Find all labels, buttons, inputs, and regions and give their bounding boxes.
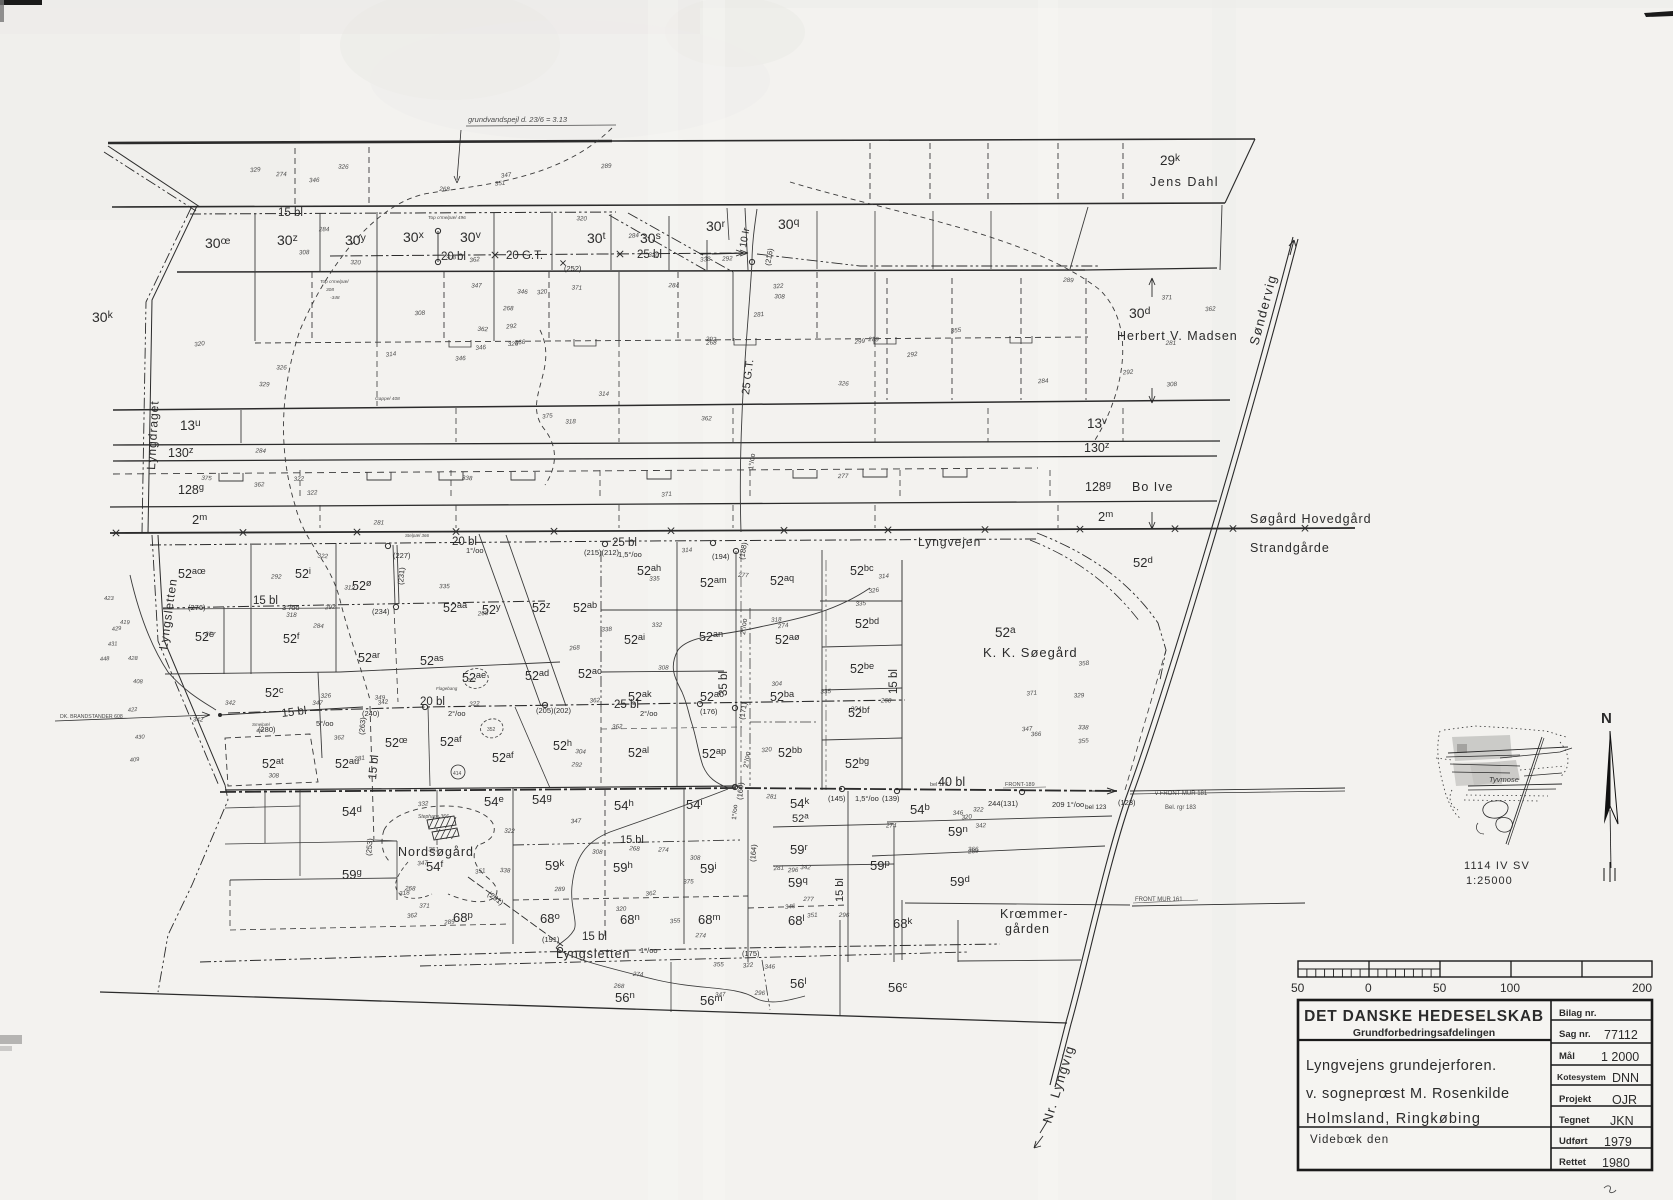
svg-text:(205)(202): (205)(202) bbox=[536, 706, 572, 715]
svg-text:15 bl: 15 bl bbox=[834, 878, 846, 902]
svg-text:320: 320 bbox=[648, 252, 659, 259]
svg-text:200: 200 bbox=[1632, 981, 1652, 995]
svg-text:338: 338 bbox=[700, 256, 712, 264]
svg-text:Tegnet: Tegnet bbox=[1559, 1115, 1590, 1126]
svg-text:308: 308 bbox=[445, 254, 456, 262]
svg-text:335: 335 bbox=[820, 688, 831, 696]
svg-text:414: 414 bbox=[453, 771, 462, 777]
svg-text:304: 304 bbox=[851, 706, 862, 713]
svg-text:Strandgårde: Strandgårde bbox=[1250, 541, 1330, 555]
svg-text:15 bl: 15 bl bbox=[367, 754, 381, 780]
svg-text:284: 284 bbox=[312, 622, 324, 630]
svg-text:268: 268 bbox=[880, 697, 892, 704]
svg-text:68l: 68l bbox=[788, 913, 805, 928]
svg-text:371: 371 bbox=[1161, 294, 1172, 301]
svg-text:318: 318 bbox=[399, 889, 411, 897]
svg-text:284: 284 bbox=[254, 447, 266, 455]
svg-text:20 bl: 20 bl bbox=[420, 696, 445, 708]
svg-text:318: 318 bbox=[771, 616, 782, 624]
svg-text:371: 371 bbox=[1026, 690, 1037, 698]
svg-text:289: 289 bbox=[443, 918, 456, 926]
svg-text:N: N bbox=[1601, 710, 1613, 727]
svg-text:277: 277 bbox=[837, 473, 849, 480]
svg-text:362: 362 bbox=[477, 326, 488, 333]
svg-text:(164): (164) bbox=[748, 843, 759, 862]
svg-text:1:25000: 1:25000 bbox=[1466, 875, 1513, 887]
svg-text:Udført: Udført bbox=[1559, 1136, 1588, 1147]
svg-text:362: 362 bbox=[701, 415, 712, 422]
svg-text:281: 281 bbox=[752, 311, 764, 319]
svg-text:281: 281 bbox=[373, 519, 385, 526]
svg-text:320: 320 bbox=[961, 813, 973, 821]
svg-text:346: 346 bbox=[455, 355, 466, 363]
svg-text:Kotesystem: Kotesystem bbox=[1557, 1072, 1606, 1082]
svg-text:FRONT MUR 161: FRONT MUR 161 bbox=[1135, 897, 1183, 903]
svg-text:15 bl: 15 bl bbox=[620, 834, 644, 846]
svg-text:318: 318 bbox=[565, 418, 576, 425]
svg-text:Krœmmer-: Krœmmer- bbox=[1000, 907, 1068, 921]
svg-text:299: 299 bbox=[853, 338, 866, 346]
svg-text:289: 289 bbox=[967, 848, 980, 856]
svg-text:408: 408 bbox=[133, 679, 144, 685]
svg-text:335: 335 bbox=[649, 575, 660, 582]
svg-text:351: 351 bbox=[807, 912, 818, 920]
svg-text:342: 342 bbox=[377, 698, 389, 706]
svg-text:371: 371 bbox=[419, 903, 430, 910]
svg-text:357: 357 bbox=[468, 678, 477, 684]
svg-text:308: 308 bbox=[658, 665, 669, 672]
svg-text:322: 322 bbox=[317, 553, 328, 561]
svg-text:430: 430 bbox=[135, 734, 146, 741]
svg-text:322: 322 bbox=[307, 489, 319, 497]
svg-text:322: 322 bbox=[773, 283, 785, 291]
svg-text:5°/oo: 5°/oo bbox=[316, 719, 334, 728]
svg-text:56l: 56l bbox=[790, 976, 807, 991]
svg-text:77112: 77112 bbox=[1604, 1028, 1638, 1042]
svg-text:274: 274 bbox=[885, 822, 897, 829]
svg-text:346: 346 bbox=[764, 964, 775, 971]
svg-text:15 bl: 15 bl bbox=[888, 669, 900, 694]
svg-text:268: 268 bbox=[568, 644, 581, 652]
svg-text:362: 362 bbox=[589, 697, 600, 705]
svg-text:292: 292 bbox=[570, 761, 582, 769]
svg-text:347: 347 bbox=[471, 282, 482, 289]
svg-text:Videbœk den: Videbœk den bbox=[1310, 1134, 1389, 1146]
svg-text:268: 268 bbox=[613, 983, 625, 990]
svg-text:423: 423 bbox=[104, 596, 114, 602]
svg-text:Top o'melpæl 496: Top o'melpæl 496 bbox=[428, 215, 466, 221]
svg-text:362: 362 bbox=[612, 723, 623, 731]
svg-text:(276): (276) bbox=[188, 603, 206, 612]
svg-text:448: 448 bbox=[100, 656, 111, 663]
svg-text:(194): (194) bbox=[712, 552, 730, 561]
svg-text:335: 335 bbox=[439, 583, 450, 590]
svg-text:352: 352 bbox=[487, 727, 496, 733]
svg-text:Gappel 408: Gappel 408 bbox=[375, 396, 400, 402]
svg-text:244(131): 244(131) bbox=[988, 799, 1019, 808]
svg-text:314: 314 bbox=[385, 351, 397, 359]
svg-text:375: 375 bbox=[542, 412, 554, 420]
svg-text:Søgård Hovedgård: Søgård Hovedgård bbox=[1250, 512, 1372, 526]
svg-text:59i: 59i bbox=[700, 861, 717, 876]
svg-text:428: 428 bbox=[128, 656, 138, 662]
svg-text:Bel. rgr 183: Bel. rgr 183 bbox=[1165, 805, 1197, 811]
svg-text:314: 314 bbox=[598, 391, 609, 398]
svg-text:292: 292 bbox=[270, 573, 282, 580]
svg-text:338: 338 bbox=[1078, 724, 1089, 731]
svg-text:422: 422 bbox=[128, 707, 139, 714]
svg-text:15 bl: 15 bl bbox=[582, 931, 607, 943]
svg-text:Lyngvejens grundejerforen.: Lyngvejens grundejerforen. bbox=[1306, 1058, 1497, 1074]
svg-text:50: 50 bbox=[1291, 981, 1305, 995]
svg-text:(160): (160) bbox=[735, 781, 746, 800]
svg-text:52i: 52i bbox=[295, 566, 311, 581]
svg-text:35 bl: 35 bl bbox=[718, 671, 730, 696]
svg-text:284: 284 bbox=[318, 226, 330, 233]
svg-text:268: 268 bbox=[628, 845, 640, 853]
svg-text:274: 274 bbox=[694, 932, 706, 940]
svg-text:431: 431 bbox=[108, 641, 118, 648]
svg-text:1,5°/oo: 1,5°/oo bbox=[618, 550, 642, 559]
svg-text:bel 123: bel 123 bbox=[1085, 804, 1107, 811]
svg-text:308: 308 bbox=[592, 849, 603, 856]
svg-text:Flagebang: Flagebang bbox=[436, 686, 458, 691]
svg-text:(231): (231) bbox=[396, 566, 407, 585]
svg-text:346: 346 bbox=[475, 344, 487, 352]
svg-text:308: 308 bbox=[1166, 381, 1177, 389]
svg-text:292: 292 bbox=[906, 351, 919, 359]
svg-text:296: 296 bbox=[787, 867, 799, 874]
svg-text:351: 351 bbox=[475, 867, 486, 875]
svg-text:362: 362 bbox=[334, 734, 345, 742]
svg-text:289: 289 bbox=[600, 163, 612, 171]
svg-text:358: 358 bbox=[1078, 660, 1090, 668]
svg-text:JKN: JKN bbox=[1610, 1114, 1634, 1128]
svg-text:342: 342 bbox=[975, 822, 986, 830]
svg-text:289: 289 bbox=[867, 336, 879, 343]
svg-text:338: 338 bbox=[601, 626, 612, 634]
svg-text:274: 274 bbox=[632, 971, 644, 979]
svg-text:281: 281 bbox=[765, 793, 777, 801]
svg-text:209 1°/oo: 209 1°/oo bbox=[1052, 800, 1084, 809]
svg-text:332: 332 bbox=[652, 622, 663, 629]
svg-text:318: 318 bbox=[286, 612, 297, 619]
svg-text:268: 268 bbox=[502, 305, 514, 312]
svg-text:1,5°/oo: 1,5°/oo bbox=[855, 794, 879, 803]
svg-text:355: 355 bbox=[670, 917, 682, 925]
svg-text:v FRONT MUR 181: v FRONT MUR 181 bbox=[1155, 791, 1208, 797]
svg-text:371: 371 bbox=[661, 491, 672, 499]
svg-text:Mål: Mål bbox=[1559, 1051, 1575, 1062]
svg-text:Bo Ive: Bo Ive bbox=[1132, 480, 1173, 494]
svg-text:bel 176: bel 176 bbox=[930, 782, 948, 788]
svg-text:Bilag nr.: Bilag nr. bbox=[1559, 1008, 1596, 1019]
svg-text:329: 329 bbox=[250, 166, 262, 174]
svg-text:312: 312 bbox=[344, 584, 355, 591]
svg-text:329: 329 bbox=[259, 381, 270, 388]
svg-text:281: 281 bbox=[353, 755, 365, 763]
svg-text:Grundforbedringsafdelingen: Grundforbedringsafdelingen bbox=[1353, 1027, 1495, 1039]
svg-text:284: 284 bbox=[1037, 378, 1049, 386]
svg-text:289: 289 bbox=[553, 886, 565, 893]
svg-text:1 2000: 1 2000 bbox=[1601, 1050, 1639, 1064]
svg-text:304: 304 bbox=[575, 748, 586, 756]
svg-text:322: 322 bbox=[742, 961, 754, 969]
svg-text:3°/oo: 3°/oo bbox=[282, 603, 300, 612]
svg-text:355: 355 bbox=[950, 327, 962, 335]
svg-text:(123): (123) bbox=[1118, 798, 1136, 807]
svg-text:347: 347 bbox=[571, 818, 582, 825]
svg-text:Projekt: Projekt bbox=[1559, 1094, 1592, 1105]
svg-text:308: 308 bbox=[326, 287, 334, 293]
svg-text:346: 346 bbox=[785, 903, 797, 911]
svg-text:15 bl: 15 bl bbox=[278, 207, 303, 219]
svg-text:332: 332 bbox=[418, 800, 430, 808]
svg-text:100: 100 bbox=[1500, 981, 1520, 995]
svg-text:Tyvmose: Tyvmose bbox=[1489, 775, 1519, 784]
svg-text:342: 342 bbox=[800, 864, 811, 871]
svg-text:362: 362 bbox=[1205, 305, 1217, 313]
svg-text:366: 366 bbox=[514, 339, 526, 347]
svg-text:296: 296 bbox=[838, 912, 850, 919]
svg-text:308: 308 bbox=[774, 293, 785, 300]
svg-text:1°/oo: 1°/oo bbox=[640, 946, 658, 955]
svg-text:Holmsland, Ringkøbing: Holmsland, Ringkøbing bbox=[1306, 1111, 1481, 1127]
svg-text:(191): (191) bbox=[542, 935, 560, 944]
svg-text:Herbert V. Madsen: Herbert V. Madsen bbox=[1117, 329, 1238, 343]
svg-text:320: 320 bbox=[536, 288, 548, 296]
svg-text:(176): (176) bbox=[700, 707, 718, 716]
svg-text:2°/oo: 2°/oo bbox=[640, 709, 658, 718]
svg-text:292: 292 bbox=[324, 604, 336, 612]
svg-text:DNN: DNN bbox=[1612, 1071, 1639, 1085]
svg-text:(240): (240) bbox=[362, 709, 380, 718]
svg-text:268: 268 bbox=[705, 340, 717, 347]
svg-text:0: 0 bbox=[1365, 981, 1372, 995]
svg-text:1980: 1980 bbox=[1602, 1156, 1630, 1170]
svg-text:342: 342 bbox=[193, 716, 204, 723]
svg-text:DET DANSKE HEDESELSKAB: DET DANSKE HEDESELSKAB bbox=[1304, 1008, 1544, 1025]
svg-text:320: 320 bbox=[350, 259, 361, 266]
svg-text:20 G.T.: 20 G.T. bbox=[506, 250, 543, 262]
svg-text:326: 326 bbox=[868, 587, 880, 595]
svg-text:Stephans 366: Stephans 366 bbox=[418, 814, 449, 820]
svg-text:308: 308 bbox=[690, 855, 701, 862]
svg-text:OJR: OJR bbox=[1612, 1093, 1637, 1107]
svg-text:308: 308 bbox=[268, 772, 279, 779]
svg-text:25 bl: 25 bl bbox=[614, 699, 639, 711]
svg-text:362: 362 bbox=[254, 481, 265, 489]
svg-text:320: 320 bbox=[761, 746, 773, 754]
svg-text:268: 268 bbox=[438, 186, 450, 193]
svg-text:gården: gården bbox=[1005, 922, 1050, 936]
svg-text:320: 320 bbox=[616, 906, 627, 913]
svg-text:281: 281 bbox=[1165, 340, 1177, 347]
svg-text:338: 338 bbox=[500, 867, 511, 875]
svg-text:274: 274 bbox=[657, 846, 669, 853]
svg-text:375: 375 bbox=[683, 878, 694, 886]
svg-text:320: 320 bbox=[576, 215, 587, 222]
svg-text:289: 289 bbox=[1062, 277, 1074, 285]
svg-text:Top o'melpæl: Top o'melpæl bbox=[320, 279, 349, 285]
svg-text:274: 274 bbox=[275, 171, 287, 178]
svg-text:296: 296 bbox=[753, 990, 765, 997]
svg-text:362: 362 bbox=[469, 256, 481, 264]
svg-text:326: 326 bbox=[338, 164, 349, 171]
svg-text:342: 342 bbox=[225, 700, 236, 707]
svg-text:335: 335 bbox=[855, 600, 867, 608]
svg-text:281: 281 bbox=[772, 864, 784, 872]
svg-text:15 bl: 15 bl bbox=[253, 595, 278, 607]
svg-text:346: 346 bbox=[517, 288, 528, 295]
svg-text:292: 292 bbox=[1122, 369, 1135, 377]
svg-text:322: 322 bbox=[469, 700, 481, 708]
svg-text:326: 326 bbox=[320, 693, 331, 700]
svg-text:grundvandspejl d. 23/6 = 3.13: grundvandspejl d. 23/6 = 3.13 bbox=[468, 115, 568, 124]
svg-text:338: 338 bbox=[462, 475, 473, 483]
svg-text:2°/oo: 2°/oo bbox=[448, 709, 466, 718]
svg-text:1979: 1979 bbox=[1604, 1135, 1632, 1149]
svg-text:322: 322 bbox=[294, 475, 305, 483]
svg-text:355: 355 bbox=[713, 961, 724, 968]
svg-text:50: 50 bbox=[1433, 981, 1447, 995]
svg-text:351: 351 bbox=[495, 180, 506, 188]
svg-text:1°/oo: 1°/oo bbox=[730, 804, 739, 820]
svg-text:284: 284 bbox=[667, 282, 679, 290]
svg-text:362: 362 bbox=[407, 912, 419, 920]
svg-text:277: 277 bbox=[802, 896, 814, 903]
svg-text:(145): (145) bbox=[828, 794, 846, 803]
svg-text:54i: 54i bbox=[686, 797, 703, 812]
svg-text:346: 346 bbox=[309, 177, 320, 184]
svg-text:326: 326 bbox=[838, 380, 849, 388]
svg-text:308: 308 bbox=[414, 310, 425, 317]
svg-text:(234): (234) bbox=[372, 607, 390, 616]
svg-text:347: 347 bbox=[417, 860, 428, 868]
svg-text:Stelpæl 366: Stelpæl 366 bbox=[405, 533, 430, 538]
svg-text:277: 277 bbox=[737, 572, 749, 579]
svg-text:347: 347 bbox=[715, 991, 726, 999]
svg-text:355: 355 bbox=[1078, 737, 1090, 745]
svg-text:284: 284 bbox=[627, 232, 640, 240]
svg-text:371: 371 bbox=[571, 285, 582, 292]
svg-text:Jens Dahl: Jens Dahl bbox=[1150, 175, 1219, 189]
svg-text:(139): (139) bbox=[882, 794, 900, 803]
svg-text:322: 322 bbox=[504, 828, 515, 835]
svg-text:(280): (280) bbox=[258, 725, 276, 734]
svg-text:268: 268 bbox=[477, 610, 489, 618]
svg-text:308: 308 bbox=[299, 249, 310, 256]
svg-text:(227): (227) bbox=[393, 551, 411, 560]
svg-text:Rettet: Rettet bbox=[1559, 1157, 1587, 1168]
svg-text:292: 292 bbox=[721, 255, 733, 263]
svg-text:(215)(212): (215)(212) bbox=[584, 548, 620, 557]
svg-text:Sag nr.: Sag nr. bbox=[1559, 1029, 1591, 1040]
svg-text:329: 329 bbox=[1074, 692, 1085, 699]
svg-text:304: 304 bbox=[771, 680, 782, 688]
svg-text:351: 351 bbox=[428, 846, 439, 853]
svg-text:-348: -348 bbox=[330, 295, 340, 301]
svg-text:Lyngvejen: Lyngvejen bbox=[918, 535, 981, 549]
svg-text:326: 326 bbox=[276, 364, 287, 371]
svg-text:v. sogneprœst M. Rosenkilde: v. sogneprœst M. Rosenkilde bbox=[1306, 1086, 1510, 1102]
svg-text:292: 292 bbox=[505, 323, 518, 331]
svg-text:322: 322 bbox=[973, 806, 984, 813]
svg-text:1114 IV SV: 1114 IV SV bbox=[1464, 860, 1530, 872]
svg-text:347: 347 bbox=[312, 700, 323, 707]
svg-text:362: 362 bbox=[645, 890, 657, 898]
svg-text:(175): (175) bbox=[742, 949, 760, 958]
svg-text:314: 314 bbox=[878, 573, 890, 581]
svg-text:277: 277 bbox=[204, 631, 216, 639]
svg-text:347: 347 bbox=[500, 171, 512, 179]
svg-text:320: 320 bbox=[194, 340, 206, 348]
svg-text:(253): (253) bbox=[364, 837, 375, 856]
svg-text:K. K. Søegård: K. K. Søegård bbox=[983, 645, 1078, 660]
svg-text:375: 375 bbox=[201, 475, 212, 483]
svg-text:347: 347 bbox=[1022, 726, 1033, 734]
svg-text:314: 314 bbox=[681, 547, 692, 555]
svg-text:(263): (263) bbox=[357, 716, 368, 735]
svg-text:419: 419 bbox=[120, 620, 131, 626]
svg-text:1°/oo: 1°/oo bbox=[466, 546, 484, 555]
